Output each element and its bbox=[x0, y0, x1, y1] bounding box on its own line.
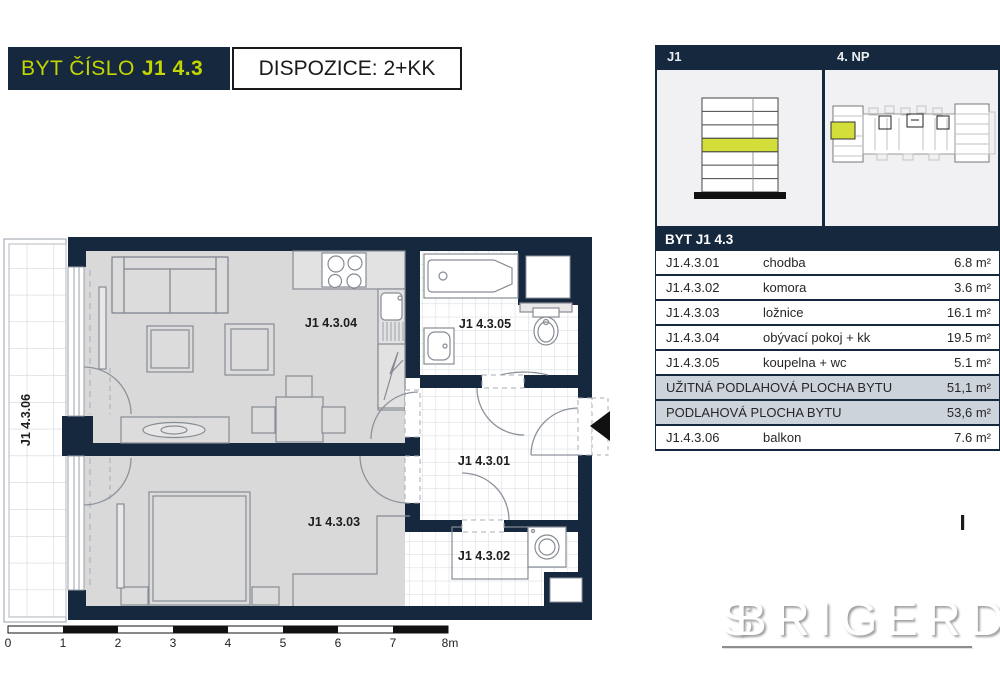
chair bbox=[252, 407, 275, 433]
nightstand bbox=[252, 587, 279, 605]
brand-logo: SBRIGERD bbox=[722, 593, 972, 648]
unit-table-header: BYT J1 4.3 bbox=[655, 228, 1000, 251]
summary-row: UŽITNÁ PODLAHOVÁ PLOCHA BYTU 51,1 m² bbox=[655, 376, 1000, 401]
table-row: J1.4.3.05 koupelna + wc 5.1 m² bbox=[655, 351, 1000, 376]
room-name: ložnice bbox=[763, 305, 919, 320]
table-row: J1.4.3.06 balkon 7.6 m² bbox=[655, 426, 1000, 451]
room-area: 7.6 m² bbox=[919, 430, 999, 445]
highlighted-floor bbox=[702, 138, 778, 151]
building-elevation-box bbox=[657, 70, 825, 226]
summary-row: PODLAHOVÁ PLOCHA BYTU 53,6 m² bbox=[655, 401, 1000, 426]
bedroom-label: J1 4.3.03 bbox=[308, 515, 360, 529]
scale-tick: 6 bbox=[335, 636, 342, 650]
panel-header: J1 4. NP bbox=[655, 45, 1000, 68]
logo-underline bbox=[722, 646, 972, 648]
storage-label: J1 4.3.02 bbox=[458, 549, 510, 563]
floor-overview-box bbox=[825, 70, 998, 226]
layout-type-box: DISPOZICE: 2+KK bbox=[232, 47, 462, 90]
room-area: 6.8 m² bbox=[919, 255, 999, 270]
room-code: J1.4.3.02 bbox=[656, 280, 763, 295]
building-label: J1 bbox=[655, 45, 827, 68]
radiator bbox=[117, 504, 124, 588]
scale-tick: 1 bbox=[60, 636, 67, 650]
room-name: komora bbox=[763, 280, 919, 295]
room-name: koupelna + wc bbox=[763, 355, 919, 370]
scale-tick: 0 bbox=[5, 636, 12, 650]
floor-overview-icon bbox=[825, 70, 997, 226]
living-label: J1 4.3.04 bbox=[305, 316, 357, 330]
balcony bbox=[4, 239, 66, 622]
summary-label: PODLAHOVÁ PLOCHA BYTU bbox=[656, 405, 919, 420]
building-elevation-icon bbox=[657, 70, 822, 226]
room-area: 5.1 m² bbox=[919, 355, 999, 370]
hall-label: J1 4.3.01 bbox=[458, 454, 510, 468]
page-tick-mark bbox=[961, 515, 964, 530]
storage-shaft bbox=[550, 578, 582, 602]
balcony-label: J1 4.3.06 bbox=[19, 394, 33, 446]
layout-type-label: DISPOZICE: 2+KK bbox=[259, 57, 436, 81]
table-row: J1.4.3.01 chodba 6.8 m² bbox=[655, 251, 1000, 276]
room-area: 19.5 m² bbox=[919, 330, 999, 345]
bathroom-label: J1 4.3.05 bbox=[459, 317, 511, 331]
room-code: J1.4.3.01 bbox=[656, 255, 763, 270]
info-panel: J1 4. NP bbox=[655, 45, 1000, 451]
room-name: obývací pokoj + kk bbox=[763, 330, 919, 345]
summary-label: UŽITNÁ PODLAHOVÁ PLOCHA BYTU bbox=[656, 380, 919, 395]
table-row: J1.4.3.03 ložnice 16.1 m² bbox=[655, 301, 1000, 326]
chair bbox=[286, 376, 312, 397]
scale-tick: 8m bbox=[442, 636, 459, 650]
radiator bbox=[99, 287, 106, 369]
toilet-tank bbox=[533, 308, 559, 317]
scale-tick: 3 bbox=[170, 636, 177, 650]
floor-plan: J1 4.3.04 J1 4.3.05 J1 4.3.01 J1 4.3.03 … bbox=[0, 225, 630, 675]
bed bbox=[149, 492, 250, 605]
scale-tick: 5 bbox=[280, 636, 287, 650]
armchair bbox=[225, 324, 274, 375]
room-code: J1.4.3.06 bbox=[656, 430, 763, 445]
scale-tick: 4 bbox=[225, 636, 232, 650]
unit-title-badge: BYT ČÍSLO J1 4.3 bbox=[8, 47, 230, 90]
room-area: 3.6 m² bbox=[919, 280, 999, 295]
scale-bar: 0 1 2 3 4 5 6 7 8m bbox=[5, 626, 459, 650]
room-area: 16.1 m² bbox=[919, 305, 999, 320]
summary-area: 53,6 m² bbox=[919, 405, 999, 420]
room-name: balkon bbox=[763, 430, 919, 445]
logo-wordmark: RIGERD bbox=[776, 592, 1000, 645]
room-code: J1.4.3.04 bbox=[656, 330, 763, 345]
scale-tick: 7 bbox=[390, 636, 397, 650]
chair bbox=[322, 407, 345, 433]
scale-tick: 2 bbox=[115, 636, 122, 650]
floor-label: 4. NP bbox=[827, 45, 1000, 68]
logo-monogram-b: B bbox=[735, 592, 775, 645]
washing-machine bbox=[528, 527, 566, 567]
panel-diagrams bbox=[655, 68, 1000, 228]
brand-logo-text: SBRIGERD bbox=[722, 593, 972, 645]
table-row: J1.4.3.02 komora 3.6 m² bbox=[655, 276, 1000, 301]
unit-title-prefix: BYT ČÍSLO bbox=[21, 57, 135, 81]
table-row: J1.4.3.04 obývací pokoj + kk 19.5 m² bbox=[655, 326, 1000, 351]
nightstand bbox=[121, 587, 148, 605]
page: BYT ČÍSLO J1 4.3 DISPOZICE: 2+KK bbox=[0, 0, 1000, 700]
highlighted-unit bbox=[831, 122, 855, 139]
unit-title-number: J1 4.3 bbox=[142, 57, 203, 81]
bathroom-shaft bbox=[526, 256, 570, 298]
room-code: J1.4.3.03 bbox=[656, 305, 763, 320]
room-name: chodba bbox=[763, 255, 919, 270]
tv bbox=[143, 423, 205, 438]
summary-area: 51,1 m² bbox=[919, 380, 999, 395]
dining-table bbox=[276, 397, 323, 442]
coffee-table bbox=[147, 326, 193, 372]
room-code: J1.4.3.05 bbox=[656, 355, 763, 370]
